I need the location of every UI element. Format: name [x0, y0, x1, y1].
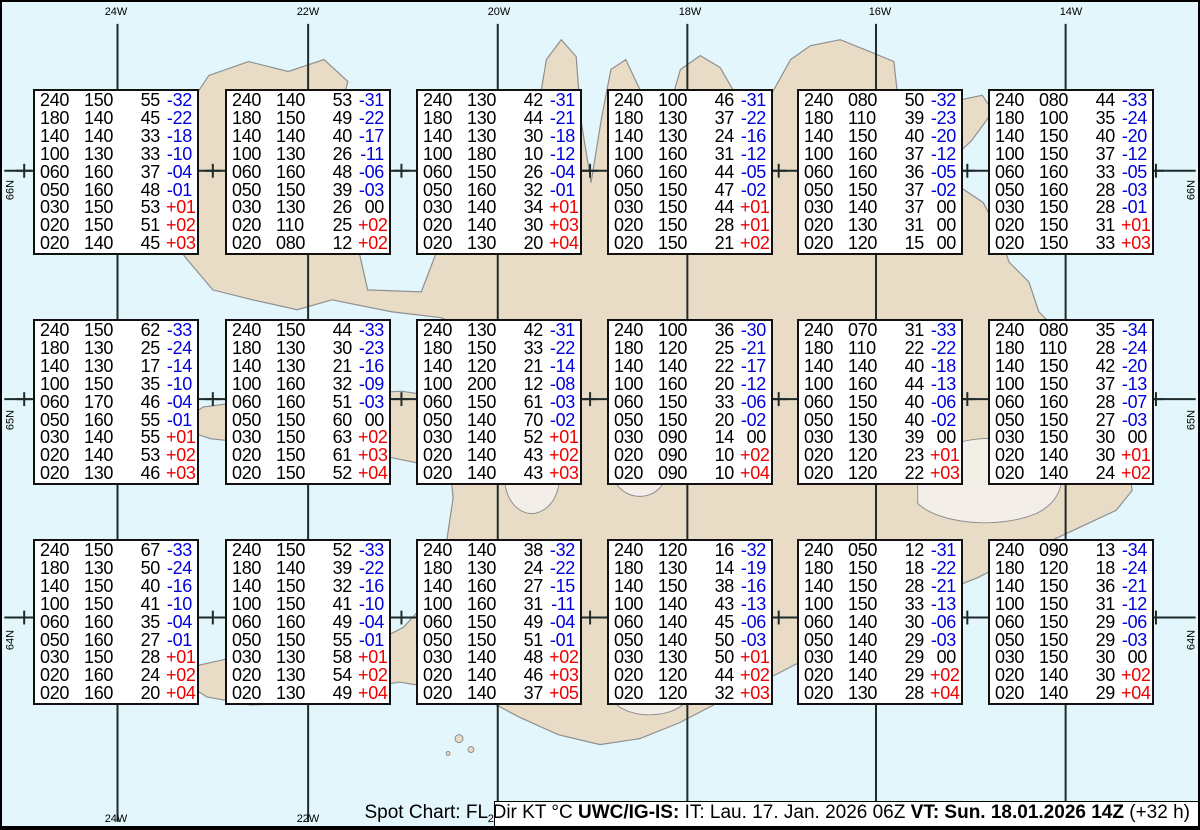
fl-value: 100	[804, 596, 842, 614]
kt-value: 12	[322, 235, 352, 253]
spot-level-row: 10013026-11	[232, 146, 384, 164]
dir-value: 150	[1039, 146, 1079, 164]
fl-value: 060	[232, 614, 270, 632]
spot-level-row: 06016048-06	[232, 164, 384, 182]
dir-value: 140	[658, 614, 698, 632]
dir-value: 140	[658, 596, 698, 614]
kt-value: 26	[513, 164, 543, 182]
spot-level-row: 02014024+02	[995, 465, 1147, 483]
spot-level-row: 06014045-06	[614, 614, 766, 632]
spot-level-row: 02016020+04	[40, 685, 192, 703]
fl-value: 100	[232, 146, 270, 164]
lon-label-top-18W: 18W	[679, 7, 702, 18]
temp-value: -13	[930, 376, 956, 394]
spot-level-row: 02014043+03	[423, 465, 575, 483]
spot-level-row: 06015033-06	[614, 394, 766, 412]
spot-level-row: 10016031-11	[423, 596, 575, 614]
temp-value: -11	[358, 146, 384, 164]
dir-value: 150	[467, 394, 507, 412]
dir-value: 160	[658, 146, 698, 164]
dir-value: 180	[467, 146, 507, 164]
fl-value: 020	[40, 235, 78, 253]
dir-value: 150	[84, 376, 124, 394]
fl-value: 100	[40, 596, 78, 614]
kt-value: 29	[1085, 685, 1115, 703]
temp-value: -12	[1121, 146, 1147, 164]
spot-level-row: 10016020-12	[614, 376, 766, 394]
lon-label-bottom-24W: 24W	[105, 814, 128, 825]
spot-level-row: 0201201500	[804, 235, 956, 253]
fl-value: 100	[614, 376, 652, 394]
temp-value: +03	[740, 685, 770, 703]
temp-value: -10	[166, 376, 192, 394]
dir-value: 140	[848, 614, 888, 632]
temp-value: +04	[1121, 685, 1151, 703]
temp-value: +02	[740, 235, 770, 253]
lon-label-top-24W: 24W	[105, 7, 128, 18]
dir-value: 090	[658, 465, 698, 483]
temp-value: -10	[166, 146, 192, 164]
fl-value: 060	[614, 394, 652, 412]
temp-value: -03	[549, 394, 575, 412]
temp-value: -06	[358, 164, 384, 182]
kt-value: 32	[322, 376, 352, 394]
legend-text: Spot Chart: FL Dir KT °C	[364, 802, 578, 824]
kt-value: 29	[1085, 614, 1115, 632]
spot-level-row: 06014030-06	[804, 614, 956, 632]
kt-value: 35	[130, 376, 160, 394]
fl-value: 060	[423, 394, 461, 412]
kt-value: 61	[513, 394, 543, 412]
temp-value: +04	[166, 685, 196, 703]
temp-value: +02	[1121, 465, 1151, 483]
temp-value: +03	[930, 465, 960, 483]
dir-value: 150	[848, 596, 888, 614]
kt-value: 20	[513, 235, 543, 253]
kt-value: 40	[894, 394, 924, 412]
temp-value: -12	[740, 376, 766, 394]
spot-level-row: 02012022+03	[804, 465, 956, 483]
fl-value: 100	[40, 376, 78, 394]
dir-value: 130	[84, 465, 124, 483]
spot-box-18W-66N: 24010046-3118013037-2214013024-161001603…	[607, 89, 773, 255]
dir-value: 140	[467, 465, 507, 483]
temp-value: -05	[930, 164, 956, 182]
spot-level-row: 06016049-04	[232, 614, 384, 632]
dir-value: 080	[276, 235, 316, 253]
spot-box-16W-66N: 24008050-3218011039-2314015040-201001603…	[797, 89, 963, 255]
fl-value: 020	[232, 685, 270, 703]
dir-value: 150	[1039, 235, 1079, 253]
kt-value: 31	[704, 146, 734, 164]
kt-value: 15	[894, 235, 924, 253]
spot-box-14W-65N: 24008035-3418011028-2414015042-201001503…	[988, 319, 1154, 485]
kt-value: 26	[322, 146, 352, 164]
temp-value: +04	[549, 235, 579, 253]
dir-value: 130	[276, 685, 316, 703]
spot-level-row: 06015029-06	[995, 614, 1147, 632]
dir-value: 140	[1039, 465, 1079, 483]
spot-level-row: 06017046-04	[40, 394, 192, 412]
dir-value: 170	[84, 394, 124, 412]
dir-value: 150	[658, 394, 698, 412]
kt-value: 35	[130, 614, 160, 632]
spot-level-row: 02014045+03	[40, 235, 192, 253]
dir-value: 150	[467, 614, 507, 632]
kt-value: 21	[704, 235, 734, 253]
fl-value: 100	[995, 376, 1033, 394]
kt-value: 46	[130, 394, 160, 412]
spot-level-row: 10015037-13	[995, 376, 1147, 394]
temp-value: +04	[358, 685, 388, 703]
spot-box-14W-66N: 24008044-3318010035-2414015040-201001503…	[988, 89, 1154, 255]
temp-value: -04	[166, 164, 192, 182]
temp-value: +05	[549, 685, 579, 703]
kt-value: 46	[130, 465, 160, 483]
fl-value: 020	[232, 465, 270, 483]
lon-label-top-14W: 14W	[1060, 7, 1083, 18]
spot-level-row: 02008012+02	[232, 235, 384, 253]
fl-value: 020	[995, 235, 1033, 253]
kt-value: 33	[1085, 235, 1115, 253]
temp-value: -10	[166, 596, 192, 614]
fl-value: 100	[995, 596, 1033, 614]
fl-value: 060	[995, 164, 1033, 182]
spot-box-18W-65N: 24010036-3018012025-2114014022-171001602…	[607, 319, 773, 485]
fl-value: 060	[40, 614, 78, 632]
temp-value: -12	[1121, 596, 1147, 614]
fl-value: 020	[804, 465, 842, 483]
dir-value: 150	[276, 465, 316, 483]
kt-value: 31	[513, 596, 543, 614]
island	[468, 747, 474, 753]
kt-value: 30	[894, 614, 924, 632]
kt-value: 43	[704, 596, 734, 614]
kt-value: 49	[513, 614, 543, 632]
lon-label-top-20W: 20W	[488, 7, 511, 18]
temp-value: -09	[358, 376, 384, 394]
spot-box-24W-66N: 24015055-3218014045-2214014033-181001303…	[33, 89, 199, 255]
spot-level-row: 06016028-07	[995, 394, 1147, 412]
spot-chart-canvas: 24W24W22W22W20W20W18W18W16W16W14W14W66N6…	[0, 0, 1200, 830]
legend-text-bold: VT: Sun. 18.01.2026 14Z	[911, 802, 1124, 824]
dir-value: 130	[276, 146, 316, 164]
temp-value: -12	[549, 146, 575, 164]
kt-value: 48	[322, 164, 352, 182]
dir-value: 150	[84, 596, 124, 614]
dir-value: 160	[848, 146, 888, 164]
fl-value: 060	[995, 614, 1033, 632]
lat-label-right-65N: 65N	[1187, 410, 1198, 430]
kt-value: 44	[704, 164, 734, 182]
spot-level-row: 06015049-04	[423, 614, 575, 632]
fl-value: 060	[614, 614, 652, 632]
dir-value: 160	[658, 164, 698, 182]
kt-value: 37	[130, 164, 160, 182]
temp-value: -13	[930, 596, 956, 614]
kt-value: 51	[322, 394, 352, 412]
fl-value: 060	[232, 394, 270, 412]
spot-level-row: 06015026-04	[423, 164, 575, 182]
kt-value: 12	[513, 376, 543, 394]
fl-value: 020	[614, 685, 652, 703]
dir-value: 160	[276, 394, 316, 412]
kt-value: 45	[130, 235, 160, 253]
dir-value: 200	[467, 376, 507, 394]
spot-level-row: 02009010+04	[614, 465, 766, 483]
dir-value: 160	[276, 376, 316, 394]
spot-level-row: 02013049+04	[232, 685, 384, 703]
kt-value: 52	[322, 465, 352, 483]
kt-value: 37	[1085, 376, 1115, 394]
kt-value: 44	[894, 376, 924, 394]
kt-value: 33	[704, 394, 734, 412]
fl-value: 060	[804, 164, 842, 182]
kt-value: 49	[322, 685, 352, 703]
dir-value: 160	[848, 164, 888, 182]
spot-box-24W-65N: 24015062-3318013025-2414013017-141001503…	[33, 319, 199, 485]
kt-value: 20	[704, 376, 734, 394]
kt-value: 43	[513, 465, 543, 483]
spot-box-20W-66N: 24013042-3118013044-2114013030-181001801…	[416, 89, 582, 255]
temp-value: -12	[740, 146, 766, 164]
dir-value: 150	[658, 235, 698, 253]
kt-value: 36	[894, 164, 924, 182]
fl-value: 020	[423, 465, 461, 483]
spot-level-row: 10013033-10	[40, 146, 192, 164]
temp-value: -04	[166, 614, 192, 632]
dir-value: 160	[658, 376, 698, 394]
temp-value: -10	[358, 596, 384, 614]
kt-value: 10	[704, 465, 734, 483]
spot-level-row: 06016037-04	[40, 164, 192, 182]
spot-box-20W-64N: 24014038-3218013024-2214016027-151001603…	[416, 539, 582, 705]
spot-box-16W-65N: 24007031-3318011022-2214014040-181001604…	[797, 319, 963, 485]
spot-box-18W-64N: 24012016-3218013014-1914015038-161001404…	[607, 539, 773, 705]
dir-value: 120	[848, 235, 888, 253]
dir-value: 150	[467, 164, 507, 182]
dir-value: 160	[84, 614, 124, 632]
kt-value: 28	[1085, 394, 1115, 412]
legend-strip: Spot Chart: FL Dir KT °C UWC/IG-IS: IT: …	[494, 801, 1198, 826]
spot-level-row: 10014043-13	[614, 596, 766, 614]
temp-value: +04	[930, 685, 960, 703]
kt-value: 33	[894, 596, 924, 614]
fl-value: 100	[614, 596, 652, 614]
temp-value: +03	[1121, 235, 1151, 253]
spot-level-row: 06016033-05	[995, 164, 1147, 182]
kt-value: 28	[894, 685, 924, 703]
legend-text: IT: Lau. 17. Jan. 2026 06Z	[679, 802, 910, 824]
spot-level-row: 06015040-06	[804, 394, 956, 412]
kt-value: 41	[130, 596, 160, 614]
temp-value: -04	[549, 614, 575, 632]
temp-value: -13	[1121, 376, 1147, 394]
spot-box-22W-65N: 24015044-3318013030-2314013021-161001603…	[225, 319, 391, 485]
fl-value: 100	[232, 596, 270, 614]
dir-value: 140	[467, 685, 507, 703]
temp-value: -04	[166, 394, 192, 412]
lat-label-left-65N: 65N	[6, 410, 17, 430]
spot-level-row: 10016044-13	[804, 376, 956, 394]
temp-value: -06	[740, 394, 766, 412]
spot-level-row: 02013020+04	[423, 235, 575, 253]
temp-value: -06	[930, 394, 956, 412]
kt-value: 37	[513, 685, 543, 703]
temp-value: -04	[549, 164, 575, 182]
spot-level-row: 06016044-05	[614, 164, 766, 182]
spot-level-row: 02014037+05	[423, 685, 575, 703]
dir-value: 130	[84, 146, 124, 164]
fl-value: 020	[423, 685, 461, 703]
fl-value: 100	[232, 376, 270, 394]
dir-value: 160	[1039, 394, 1079, 412]
spot-box-22W-66N: 24014053-3118015049-2214014040-171001302…	[225, 89, 391, 255]
fl-value: 100	[423, 376, 461, 394]
lat-label-left-66N: 66N	[6, 180, 17, 200]
spot-box-24W-64N: 24015067-3318013050-2414015040-161001504…	[33, 539, 199, 705]
temp-value: -07	[1121, 394, 1147, 412]
spot-level-row: 10015037-12	[995, 146, 1147, 164]
fl-value: 100	[423, 146, 461, 164]
temp-value: -05	[1121, 164, 1147, 182]
temp-value: -05	[740, 164, 766, 182]
spot-level-row: 06016036-05	[804, 164, 956, 182]
dir-value: 150	[1039, 614, 1079, 632]
spot-level-row: 10015035-10	[40, 376, 192, 394]
dir-value: 120	[848, 465, 888, 483]
spot-level-row: 06016035-04	[40, 614, 192, 632]
temp-value: -13	[740, 596, 766, 614]
kt-value: 20	[130, 685, 160, 703]
spot-box-22W-64N: 24015052-3318014039-2214015032-161001504…	[225, 539, 391, 705]
kt-value: 32	[704, 685, 734, 703]
temp-value: -11	[549, 596, 575, 614]
fl-value: 020	[40, 465, 78, 483]
temp-value: +03	[549, 465, 579, 483]
lon-label-bottom-22W: 22W	[297, 814, 320, 825]
kt-value: 10	[513, 146, 543, 164]
temp-value: -06	[740, 614, 766, 632]
spot-level-row: 06015061-03	[423, 394, 575, 412]
temp-value: +02	[358, 235, 388, 253]
dir-value: 150	[1039, 596, 1079, 614]
temp-value: -04	[358, 614, 384, 632]
dir-value: 140	[84, 235, 124, 253]
spot-level-row: 02013028+04	[804, 685, 956, 703]
fl-value: 020	[995, 465, 1033, 483]
kt-value: 37	[894, 146, 924, 164]
fl-value: 020	[232, 235, 270, 253]
fl-value: 020	[804, 685, 842, 703]
kt-value: 37	[1085, 146, 1115, 164]
spot-level-row: 10016031-12	[614, 146, 766, 164]
kt-value: 33	[1085, 164, 1115, 182]
spot-level-row: 02015021+02	[614, 235, 766, 253]
fl-value: 060	[232, 164, 270, 182]
temp-value: +03	[166, 235, 196, 253]
dir-value: 130	[848, 685, 888, 703]
dir-value: 120	[658, 685, 698, 703]
temp-value: -06	[1121, 614, 1147, 632]
fl-value: 060	[614, 164, 652, 182]
kt-value: 31	[1085, 596, 1115, 614]
dir-value: 160	[276, 164, 316, 182]
spot-level-row: 02013046+03	[40, 465, 192, 483]
fl-value: 100	[614, 146, 652, 164]
island	[446, 752, 450, 756]
dir-value: 160	[84, 685, 124, 703]
spot-level-row: 10015033-13	[804, 596, 956, 614]
spot-box-16W-64N: 24005012-3118015018-2214015028-211001503…	[797, 539, 963, 705]
fl-value: 060	[40, 394, 78, 412]
spot-box-20W-65N: 24013042-3118015033-2214012021-141002001…	[416, 319, 582, 485]
spot-level-row: 10016037-12	[804, 146, 956, 164]
fl-value: 020	[995, 685, 1033, 703]
fl-value: 060	[423, 164, 461, 182]
spot-level-row: 10015031-12	[995, 596, 1147, 614]
lat-label-right-64N: 64N	[1187, 630, 1198, 650]
spot-level-row: 10015041-10	[232, 596, 384, 614]
kt-value: 22	[894, 465, 924, 483]
spot-level-row: 10016032-09	[232, 376, 384, 394]
spot-level-row: 10020012-08	[423, 376, 575, 394]
dir-value: 150	[1039, 376, 1079, 394]
spot-level-row: 02012032+03	[614, 685, 766, 703]
spot-level-row: 10015041-10	[40, 596, 192, 614]
fl-value: 100	[40, 146, 78, 164]
dir-value: 150	[848, 394, 888, 412]
temp-value: +03	[166, 465, 196, 483]
temp-value: +04	[740, 465, 770, 483]
fl-value: 020	[614, 465, 652, 483]
fl-value: 020	[804, 235, 842, 253]
spot-level-row: 02015033+03	[995, 235, 1147, 253]
temp-value: 00	[930, 235, 956, 253]
legend-text-bold: UWC/IG-IS:	[578, 802, 679, 824]
fl-value: 060	[40, 164, 78, 182]
temp-value: -03	[358, 394, 384, 412]
temp-value: -08	[549, 376, 575, 394]
dir-value: 160	[84, 164, 124, 182]
lon-label-top-16W: 16W	[869, 7, 892, 18]
fl-value: 060	[423, 614, 461, 632]
dir-value: 160	[467, 596, 507, 614]
dir-value: 140	[1039, 685, 1079, 703]
fl-value: 100	[423, 596, 461, 614]
fl-value: 060	[995, 394, 1033, 412]
island	[455, 735, 463, 743]
fl-value: 020	[40, 685, 78, 703]
spot-level-row: 02014029+04	[995, 685, 1147, 703]
kt-value: 24	[1085, 465, 1115, 483]
fl-value: 020	[423, 235, 461, 253]
dir-value: 160	[276, 614, 316, 632]
temp-value: -06	[930, 614, 956, 632]
spot-level-row: 06016051-03	[232, 394, 384, 412]
dir-value: 130	[467, 235, 507, 253]
fl-value: 100	[804, 146, 842, 164]
dir-value: 160	[848, 376, 888, 394]
lat-label-left-64N: 64N	[6, 630, 17, 650]
lat-label-right-66N: 66N	[1187, 180, 1198, 200]
fl-value: 060	[804, 394, 842, 412]
spot-level-row: 10018010-12	[423, 146, 575, 164]
fl-value: 100	[804, 376, 842, 394]
temp-value: +04	[358, 465, 388, 483]
kt-value: 45	[704, 614, 734, 632]
spot-level-row: 02015052+04	[232, 465, 384, 483]
